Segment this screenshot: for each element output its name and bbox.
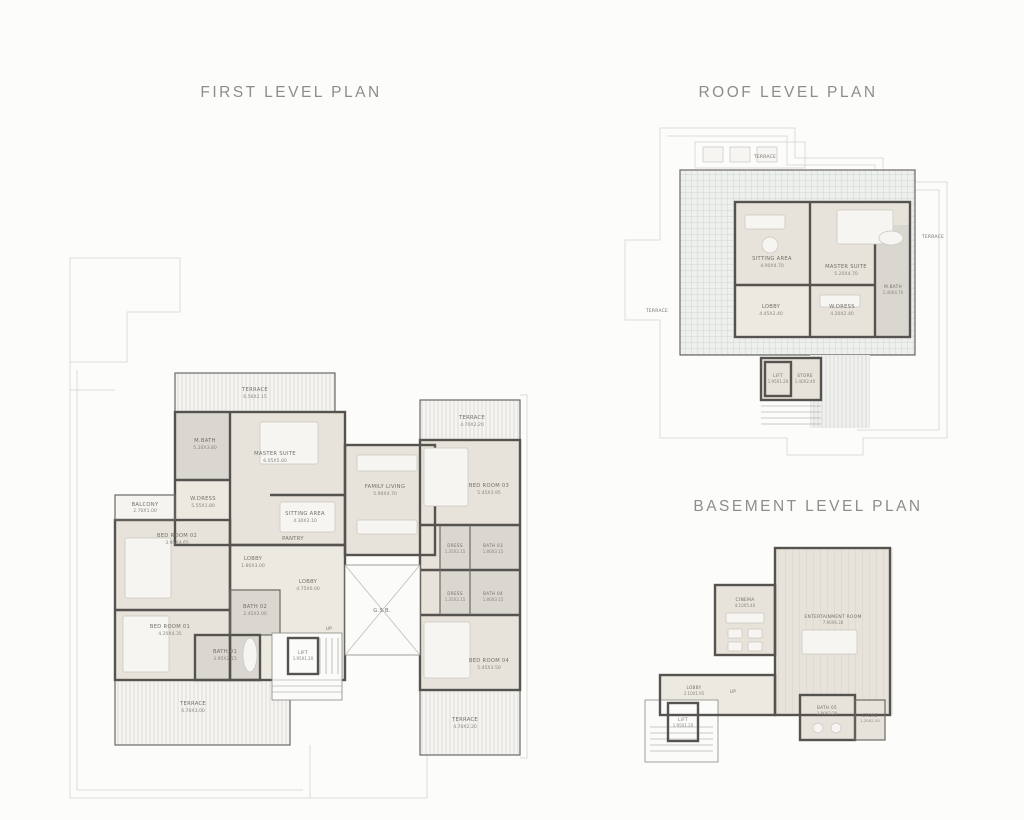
label-family-living: FAMILY LIVING [365, 484, 405, 490]
roof-level-plan-drawing: TERRACE SITTING AREA 4.90X4.70 MASTER SU… [565, 120, 965, 470]
label-roof-wdress: W.DRESS [829, 304, 855, 310]
label-bath-04: BATH 04 [483, 591, 503, 596]
label-wdress-dim: 5.55X1.80 [191, 503, 215, 509]
label-terrace-tr-dim: 4.70X2.20 [460, 422, 484, 428]
label-mbath-dim: 5.20X3.80 [193, 445, 217, 451]
label-bedroom-03: BED ROOM 03 [469, 483, 509, 489]
label-basement-lobby-dim: 2.10X1.95 [684, 691, 705, 696]
label-terrace-top-dim: 6.56X2.15 [243, 394, 267, 400]
label-lift-dim: 1.95X1.20 [293, 656, 314, 661]
label-sitting-area-dim: 4.30X2.10 [293, 518, 317, 524]
label-roof-master-dim: 5.20X4.70 [834, 271, 858, 277]
label-basement-lift-dim: 1.95X1.20 [673, 723, 694, 728]
label-roof-wdress-dim: 4.20X2.40 [830, 311, 854, 317]
label-terrace-tr: TERRACE [458, 415, 485, 421]
label-sitting-area: SITTING AREA [285, 511, 325, 517]
label-balcony: BALCONY [132, 502, 159, 508]
label-bath-01-dim: 3.95X2.15 [213, 656, 237, 662]
label-dress-03-dim: 1.35X2.15 [445, 549, 466, 554]
label-dress-04-dim: 1.35X2.15 [445, 597, 466, 602]
label-roof-mbath: M.BATH [884, 284, 902, 289]
label-dress-03: DRESS [447, 543, 463, 548]
label-roof-lift-dim: 1.95X1.20 [768, 379, 789, 384]
label-terrace-bl: TERRACE [179, 701, 206, 707]
label-terrace-br: TERRACE [451, 717, 478, 723]
label-terrace-bl-dim: 6.70X3.00 [181, 708, 205, 714]
basement-level-plan-title: BASEMENT LEVEL PLAN [658, 498, 958, 516]
label-bedroom-04: BED ROOM 04 [469, 658, 510, 664]
label-bedroom-02: BED ROOM 02 [157, 533, 197, 539]
label-roof-sitting-dim: 4.90X4.70 [760, 263, 784, 269]
label-roof-sitting: SITTING AREA [752, 256, 792, 262]
label-lobby-main-dim: 4.75X6.00 [296, 586, 320, 592]
label-balcony-dim: 2.70X1.00 [133, 508, 157, 514]
label-basement-store-dim: 1.20X2.20 [860, 718, 880, 723]
label-cinema-dim: 4.10X5.40 [735, 603, 756, 608]
roof-skylights [695, 142, 805, 168]
basement-level-plan-drawing: CINEMA 4.10X5.40 ENTERTAINMENT ROOM 7.90… [630, 535, 895, 765]
first-level-plan-drawing: TERRACE 6.56X2.15 M.BATH 5.20X3.80 MASTE… [65, 250, 530, 805]
label-lobby-small: LOBBY [244, 556, 263, 562]
label-basement-lift: LIFT [678, 717, 688, 722]
label-roof-terrace-top: TERRACE [753, 154, 776, 160]
label-roof-terrace-right: TERRACE [921, 234, 944, 240]
label-roof-lobby-dim: 4.45X2.40 [759, 311, 783, 317]
label-pantry: PANTRY [282, 536, 304, 542]
label-roof-terrace-left: TERRACE [645, 308, 668, 314]
label-lobby-small-dim: 1.80X3.00 [241, 563, 265, 569]
label-roof-mbath-dim: 2.40X4.70 [883, 290, 904, 295]
label-bedroom-02-dim: 3.95X4.65 [165, 540, 189, 546]
label-roof-lobby: LOBBY [762, 304, 781, 310]
label-family-living-dim: 5.90X4.70 [373, 491, 397, 497]
label-lobby-main: LOBBY [299, 579, 318, 585]
label-terrace-top: TERRACE [241, 387, 268, 393]
label-bath-04-dim: 1.80X3.15 [483, 597, 504, 602]
label-bath-02: BATH 02 [243, 604, 267, 610]
label-entertainment-dim: 7.90X6.30 [823, 620, 844, 625]
label-dress-04: DRESS [447, 591, 463, 596]
label-bedroom-03-dim: 5.45X3.95 [477, 490, 501, 496]
label-roof-lift: LIFT [773, 373, 783, 378]
label-mbath: M.BATH [194, 438, 216, 444]
label-basement-up: UP [730, 689, 736, 694]
label-bedroom-01-dim: 4.20X4.35 [158, 631, 182, 637]
label-gsb: G.S.B. [373, 608, 391, 614]
first-stairs [272, 633, 342, 700]
label-roof-store-dim: 1.40X2.40 [795, 379, 816, 384]
roof-level-plan-title: ROOF LEVEL PLAN [658, 84, 918, 102]
label-basement-lobby: LOBBY [686, 685, 701, 690]
label-bath-03: BATH 03 [483, 543, 503, 548]
label-bedroom-04-dim: 5.45X3.50 [477, 665, 501, 671]
label-bath-02-dim: 2.45X2.00 [243, 611, 267, 617]
floor-plans-sheet: FIRST LEVEL PLAN ROOF LEVEL PLAN BASEMEN… [0, 0, 1024, 820]
label-bedroom-01: BED ROOM 01 [150, 624, 190, 630]
label-master-suite-dim: 6.05X5.60 [263, 458, 287, 464]
label-bath-05: BATH 05 [817, 705, 837, 710]
label-wdress: W.DRESS [190, 496, 216, 502]
label-roof-master: MASTER SUITE [825, 264, 867, 270]
label-up: UP [326, 626, 332, 631]
label-roof-store: STORE [797, 373, 813, 378]
first-level-plan-title: FIRST LEVEL PLAN [161, 84, 421, 102]
label-master-suite: MASTER SUITE [254, 451, 296, 457]
label-bath-03-dim: 1.80X3.15 [483, 549, 504, 554]
label-bath-05-dim: 2.80X2.20 [817, 711, 838, 716]
label-terrace-br-dim: 4.70X2.20 [453, 724, 477, 730]
label-bath-01: BATH 01 [213, 649, 237, 655]
